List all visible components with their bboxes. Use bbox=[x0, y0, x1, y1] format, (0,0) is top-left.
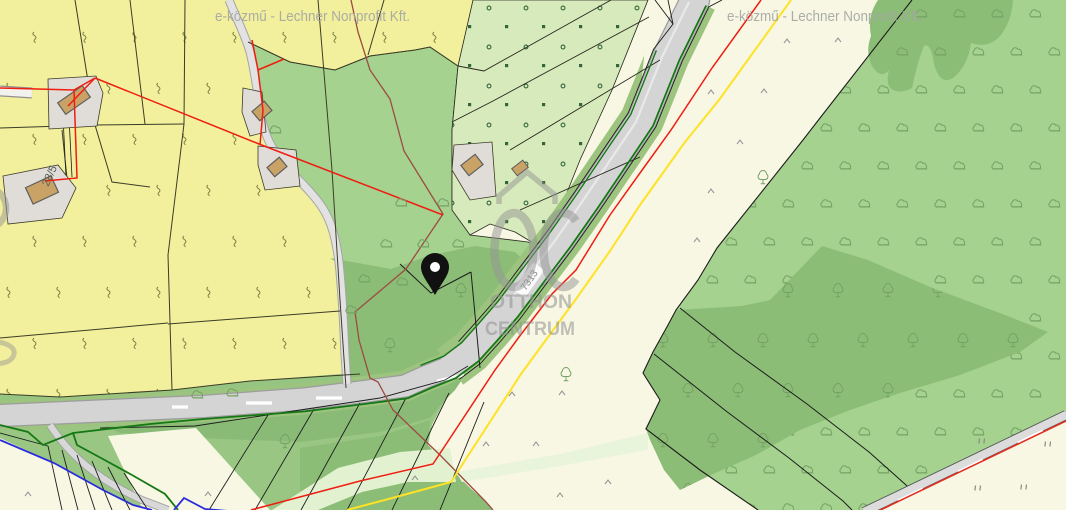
svg-text:CENTRUM: CENTRUM bbox=[485, 319, 575, 340]
svg-text:e-közmű - Lechner Nonprofit Kf: e-közmű - Lechner Nonprofit Kft. bbox=[727, 9, 922, 25]
svg-text:e-közmű - Lechner Nonprofit Kf: e-közmű - Lechner Nonprofit Kft. bbox=[215, 9, 410, 25]
svg-text:OTTHON: OTTHON bbox=[490, 292, 572, 313]
